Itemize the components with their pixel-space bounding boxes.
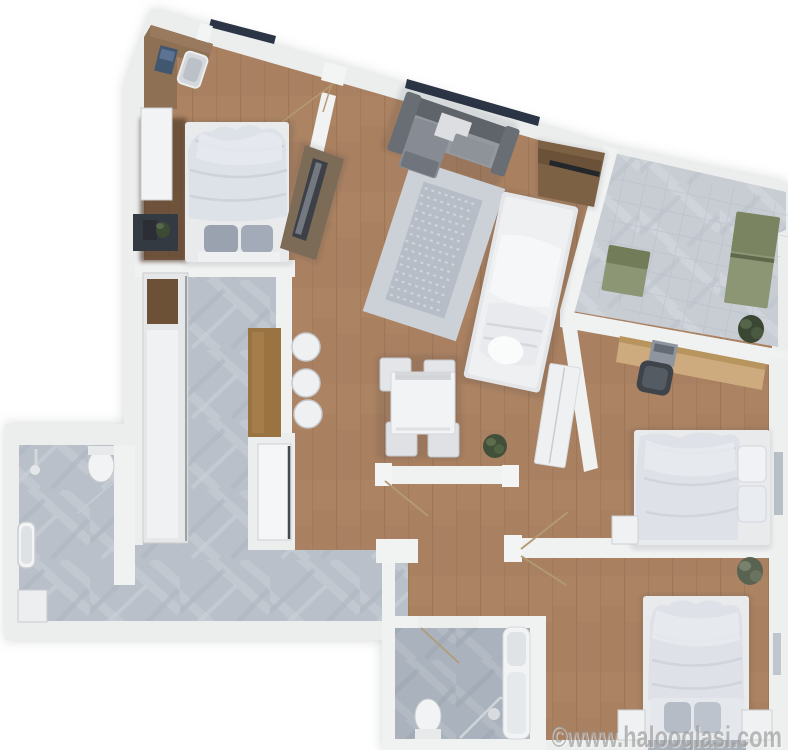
svg-text:©www.halooglasi.com: ©www.halooglasi.com [551, 721, 782, 750]
